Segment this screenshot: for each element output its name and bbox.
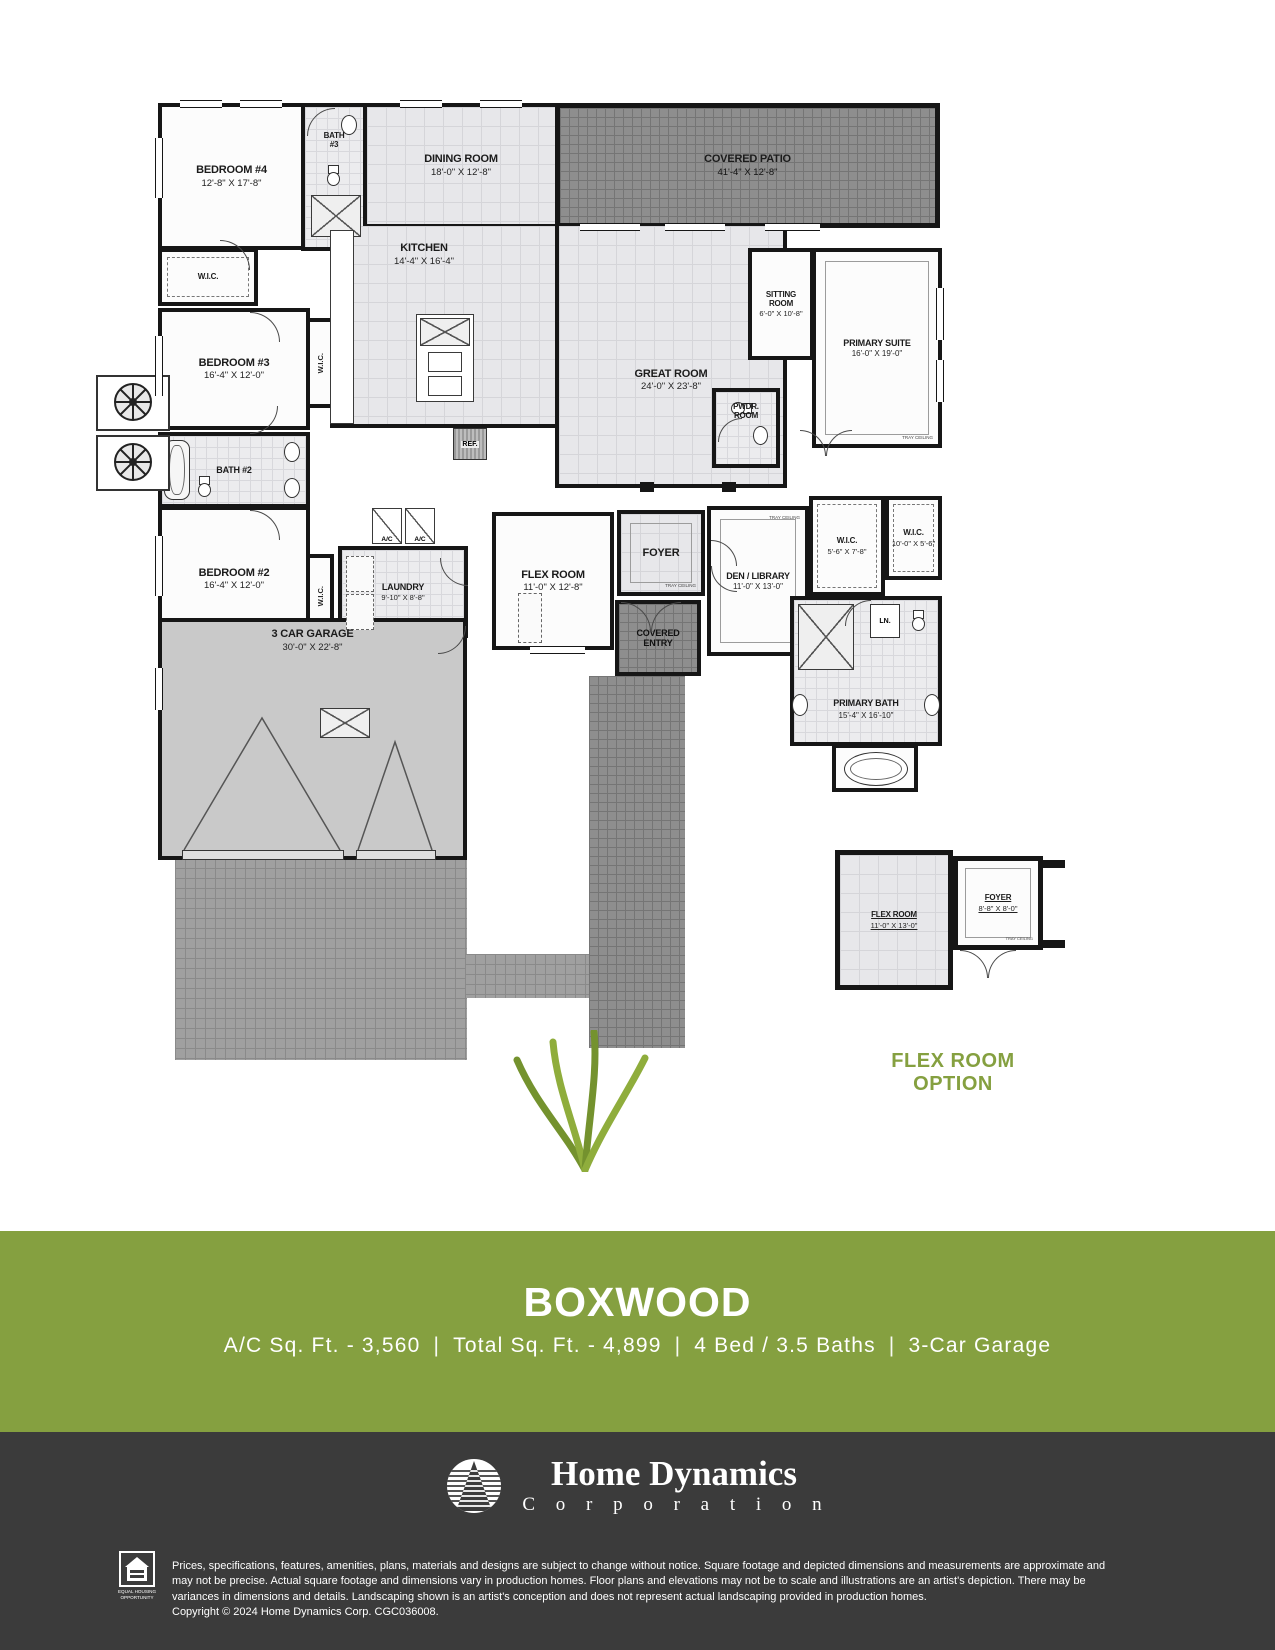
eh-text-1: EQUAL HOUSING (118, 1589, 157, 1594)
room-label: DINING ROOM (424, 153, 498, 166)
equal-housing-icon: EQUAL HOUSING OPPORTUNITY (116, 1550, 158, 1602)
room-wic-primary-1: W.I.C. 5'-6" X 7'-8" (809, 496, 885, 596)
room-label: BEDROOM #3 (199, 357, 270, 370)
door-swing (988, 950, 1016, 978)
inset-caption: FLEX ROOM OPTION (828, 1050, 1078, 1096)
room-covered-patio: COVERED PATIO 41'-4" X 12'-8" (555, 103, 940, 228)
stat-bed-bath: 4 Bed / 3.5 Baths (694, 1334, 876, 1357)
fan-icon (111, 380, 155, 424)
stat-garage: 3-Car Garage (908, 1334, 1051, 1357)
driveway (175, 858, 467, 1060)
tray-ceiling-note: TRAY CEILING (1006, 936, 1033, 941)
room-dims: 9'-10" X 8'-8" (381, 593, 424, 602)
garage-door-single (356, 850, 436, 860)
eh-text-2: OPPORTUNITY (120, 1595, 153, 1600)
room-dims: 18'-0" X 12'-8" (431, 167, 491, 178)
title-banner: BOXWOOD A/C Sq. Ft. - 3,560|Total Sq. Ft… (0, 1231, 1275, 1432)
ac-closet: A/C (405, 508, 435, 544)
ref-label: REF. (461, 441, 478, 448)
room-label: W.I.C. (198, 272, 219, 281)
room-dims: 16'-4" X 12'-0" (204, 370, 264, 381)
shower-icon (798, 604, 854, 670)
room-dims: 14'-4" X 16'-4" (354, 256, 494, 267)
company-name-block: Home Dynamics C o r p o r a t i o n (518, 1456, 829, 1516)
plan-stats: A/C Sq. Ft. - 3,560|Total Sq. Ft. - 4,89… (0, 1334, 1275, 1358)
toilet-icon (327, 165, 340, 186)
kitchen-counter (330, 230, 354, 424)
room-dims: 5'-6" X 7'-8" (827, 547, 866, 556)
wall-stub (1043, 860, 1065, 868)
room-primary-suite: PRIMARY SUITE 16'-0" X 19'-0" TRAY CEILI… (812, 248, 942, 448)
garage-side-door (155, 668, 163, 710)
company-name: Home Dynamics (518, 1456, 829, 1491)
entry-walkway (589, 676, 685, 1048)
inset-room-flex: FLEX ROOM 11'-0" X 13'-0" (835, 850, 953, 990)
drop-zone-cabinet (518, 593, 542, 643)
room-label: W.I.C. (837, 536, 858, 545)
room-dims: 24'-0" X 23'-8" (641, 381, 701, 392)
stat-total-sqft: Total Sq. Ft. - 4,899 (453, 1334, 661, 1357)
room-dims: 11'-0" X 13'-0" (871, 921, 918, 930)
room-sitting: SITTING ROOM 6'-0" X 10'-8" (748, 248, 814, 360)
inset-room-foyer: FOYER 8'-8" X 8'-0" TRAY CEILING (953, 856, 1043, 950)
stat-separator: | (662, 1334, 695, 1357)
room-label: BATH #2 (216, 465, 251, 475)
tray-ceiling-note: TRAY CEILING (769, 515, 800, 520)
disclaimer-text: Prices, specifications, features, amenit… (172, 1560, 1105, 1603)
walkway-connector (465, 954, 589, 998)
room-label: BEDROOM #4 (196, 164, 267, 177)
room-dims: 15'-4" X 16'-10" (794, 711, 938, 720)
room-label: PWDR. (733, 402, 759, 411)
sink-icon (284, 442, 300, 462)
window (240, 100, 282, 108)
island-sink-2 (428, 376, 462, 396)
wall-stub (1043, 940, 1065, 948)
pantry-cabinet-icon (420, 318, 470, 346)
window (155, 336, 163, 396)
room-label: BEDROOM #2 (199, 567, 270, 580)
grass-w-logo (497, 1030, 667, 1172)
room-dims: 16'-0" X 19'-0" (852, 349, 903, 358)
room-bedroom4: BEDROOM #4 12'-8" X 17'-8" (158, 103, 305, 250)
window (155, 536, 163, 596)
room-label: FLEX ROOM (521, 569, 585, 582)
window (400, 100, 442, 108)
window (765, 223, 820, 231)
inset-caption-line1: FLEX ROOM (828, 1050, 1078, 1073)
primary-tub-alcove (832, 744, 918, 792)
room-label-2: ENTRY (643, 638, 672, 648)
pyramid-icon (445, 1457, 503, 1515)
plan-title: BOXWOOD (0, 1279, 1275, 1326)
room-dims: 41'-4" X 12'-8" (717, 167, 777, 178)
window (155, 138, 163, 198)
room-label: FLEX ROOM (871, 910, 917, 919)
room-label: LAUNDRY (382, 582, 424, 592)
room-wic-primary-2: W.I.C. 10'-0" X 5'-6" (885, 496, 942, 580)
room-dims: 8'-8" X 8'-0" (978, 904, 1017, 913)
room-dining: DINING ROOM 18'-0" X 12'-8" (363, 103, 555, 228)
garage-door-swings (162, 622, 463, 856)
room-dims: 11'-0" X 12'-8" (523, 582, 582, 593)
footer: Home Dynamics C o r p o r a t i o n EQUA… (0, 1432, 1275, 1650)
room-label-2: #3 (330, 140, 339, 149)
copyright-text: Copyright © 2024 Home Dynamics Corp. CGC… (172, 1606, 439, 1618)
room-foyer: FOYER TRAY CEILING (617, 510, 705, 596)
sink-icon (284, 478, 300, 498)
column-post (722, 482, 736, 492)
room-label: SITTING (766, 290, 796, 299)
room-label: FOYER (985, 893, 1012, 902)
flex-room-option-inset: FLEX ROOM 11'-0" X 13'-0" FOYER 8'-8" X … (830, 838, 1068, 996)
room-label: W.I.C. (316, 586, 325, 606)
company-logo: Home Dynamics C o r p o r a t i o n (0, 1456, 1275, 1516)
page: COVERED PATIO 41'-4" X 12'-8" BEDROOM #4… (0, 0, 1275, 1650)
island-sink (428, 352, 462, 372)
ac-label: A/C (414, 536, 425, 543)
garage-door-double (182, 850, 344, 860)
condenser-pad (96, 435, 170, 491)
window (665, 223, 725, 231)
sink-icon (753, 426, 768, 445)
linen-closet: LN. (870, 604, 900, 638)
ac-closet: A/C (372, 508, 402, 544)
room-label: W.I.C. (903, 528, 924, 537)
room-label: PRIMARY BATH (794, 698, 938, 708)
room-label: W.I.C. (316, 353, 325, 373)
window (480, 100, 522, 108)
window (936, 288, 944, 340)
window (530, 646, 585, 654)
washer-icon (346, 556, 374, 592)
room-label: KITCHEN (354, 242, 494, 255)
room-label: GREAT ROOM (635, 368, 708, 381)
window (580, 223, 640, 231)
door-swing (960, 950, 988, 978)
room-flex: FLEX ROOM 11'-0" X 12'-8" (492, 512, 614, 650)
room-dims: 11'-0" X 13'-0" (733, 582, 783, 591)
room-dims: 12'-8" X 17'-8" (201, 178, 261, 189)
toilet-icon (198, 476, 211, 497)
stat-ac-sqft: A/C Sq. Ft. - 3,560 (224, 1334, 421, 1357)
room-bedroom3: BEDROOM #3 16'-4" X 12'-0" (158, 308, 310, 430)
window (936, 360, 944, 402)
room-label-2: ROOM (769, 299, 793, 308)
room-label: COVERED PATIO (704, 153, 791, 166)
inset-caption-line2: OPTION (828, 1073, 1078, 1096)
room-dims: 16'-4" X 12'-0" (204, 580, 264, 591)
room-label: FOYER (643, 547, 680, 560)
stat-separator: | (420, 1334, 453, 1357)
wall (330, 424, 556, 428)
company-subtitle: C o r p o r a t i o n (522, 1494, 829, 1516)
linen-label: LN. (879, 618, 890, 625)
column-post (640, 482, 654, 492)
fan-icon (111, 440, 155, 484)
room-garage: 3 CAR GARAGE 30'-0" X 22'-8" (158, 618, 467, 860)
room-dims: 6'-0" X 10'-8" (759, 309, 802, 318)
toilet-icon (912, 610, 925, 631)
soaking-tub-icon (844, 752, 908, 786)
room-dims: 10'-0" X 5'-6" (892, 539, 935, 548)
tray-ceiling-note: TRAY CEILING (902, 435, 933, 440)
refrigerator-icon: REF. (453, 428, 487, 460)
tray-ceiling-note: TRAY CEILING (665, 583, 696, 588)
stat-separator: | (876, 1334, 909, 1357)
room-kitchen: KITCHEN 14'-4" X 16'-4" (330, 226, 555, 428)
disclaimer: Prices, specifications, features, amenit… (172, 1559, 1120, 1621)
ac-label: A/C (381, 536, 392, 543)
room-label: PRIMARY SUITE (843, 338, 910, 348)
room-bath2: BATH #2 (158, 432, 310, 508)
window (180, 100, 222, 108)
